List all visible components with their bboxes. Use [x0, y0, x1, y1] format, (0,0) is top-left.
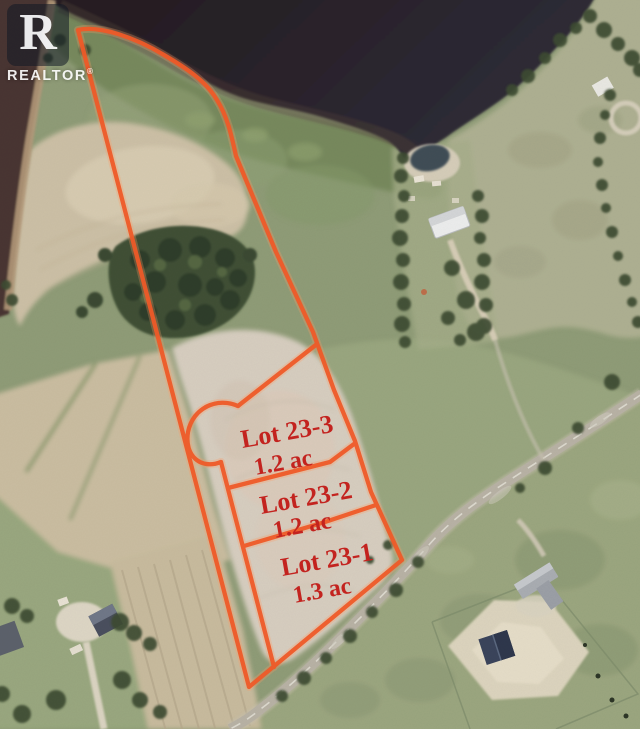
realtor-watermark: R REALTOR®	[7, 4, 93, 84]
realtor-logo-text: REALTOR®	[7, 67, 93, 84]
realtor-logo-box: R	[7, 4, 69, 66]
aerial-map-image: Lot 23-3 1.2 ac Lot 23-2 1.2 ac Lot 23-1…	[0, 0, 640, 729]
aerial-photo: Lot 23-3 1.2 ac Lot 23-2 1.2 ac Lot 23-1…	[0, 0, 640, 729]
realtor-logo-r: R	[19, 7, 57, 59]
